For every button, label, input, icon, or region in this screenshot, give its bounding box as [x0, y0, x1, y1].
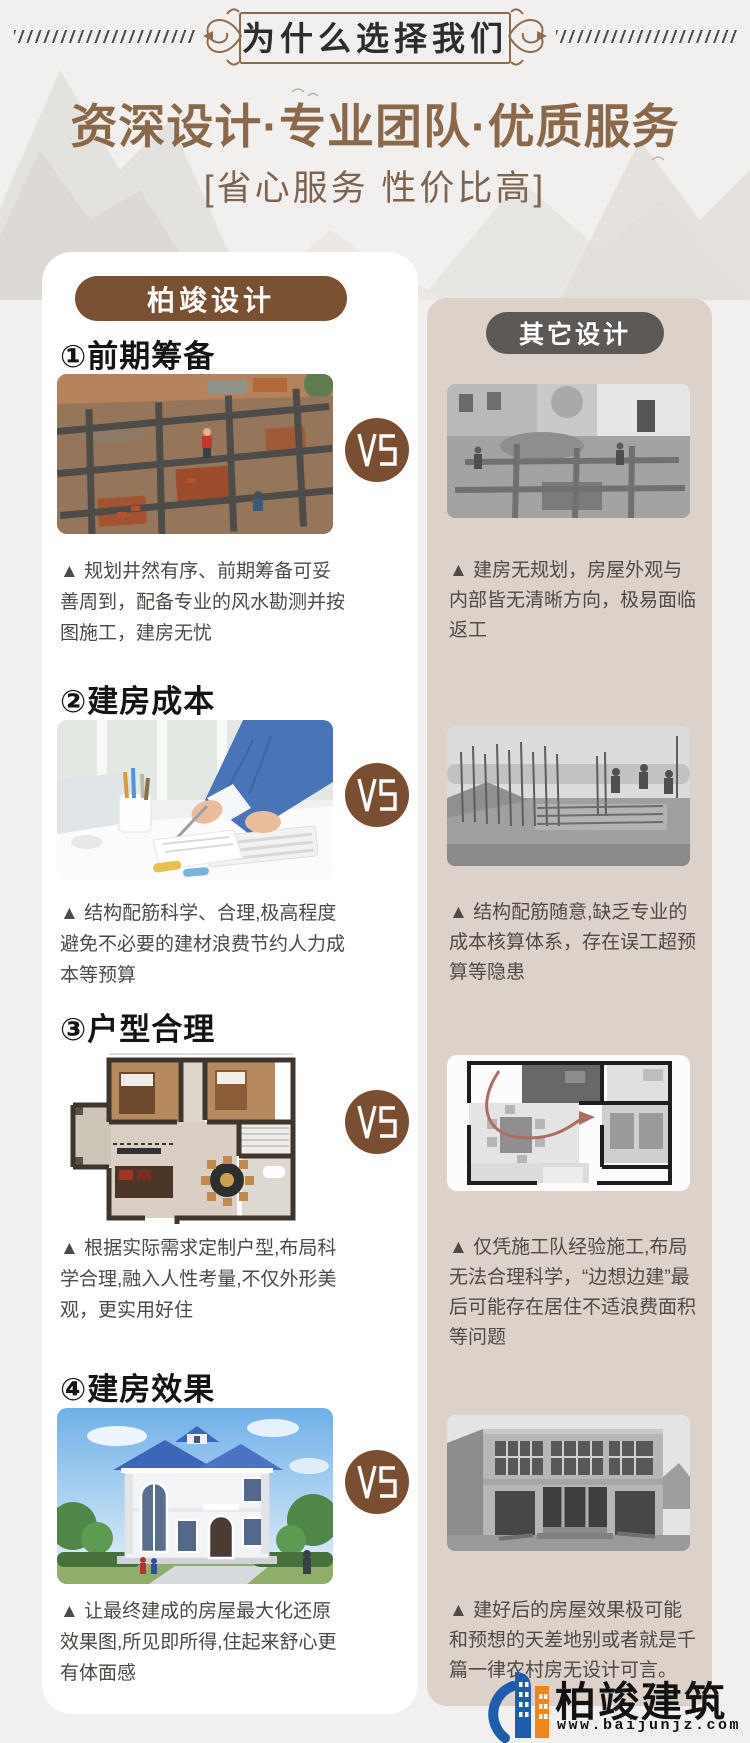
vs-icon: [357, 1464, 397, 1500]
brand-website: www.baijunjz.com: [557, 1717, 741, 1734]
hatch-lines-right: [556, 30, 738, 43]
section2-left-image: [57, 720, 333, 880]
hatch-lines-left: [14, 30, 196, 43]
section1-left-image: [57, 374, 333, 534]
vs-circle-1: [345, 418, 409, 482]
vs-icon: [357, 432, 397, 468]
section3-heading: ③户型合理: [60, 1004, 215, 1049]
section3-left-image: [57, 1048, 333, 1224]
promo-page: 为什么选择我们 资深设计·专业团队·优质服务 [省心服务 性价比高] 柏竣设计 …: [0, 0, 750, 1743]
section3-right-caption: ▲ 仅凭施工队经验施工,布局无法合理科学，“边想边建”最后可能存在居住不适浪费面…: [449, 1233, 699, 1353]
section4-right-image: [447, 1415, 690, 1551]
vs-circle-4: [345, 1450, 409, 1514]
section1-heading: ①前期筹备: [60, 331, 215, 376]
vs-icon: [357, 1104, 397, 1140]
footer-logo: 柏竣建筑 www.baijunjz.com: [483, 1662, 747, 1742]
page-subtitle: [省心服务 性价比高]: [0, 160, 750, 211]
section3-left-caption: ▲ 根据实际需求定制户型,布局科学合理,融入人性考量,不仅外形美观，更实用好住: [60, 1233, 350, 1326]
our-design-badge: 柏竣设计: [75, 276, 347, 321]
section2-heading: ②建房成本: [60, 676, 215, 721]
section1-right-image: [447, 384, 690, 518]
section4-left-caption: ▲ 让最终建成的房屋最大化还原效果图,所见即所得,住起来舒心更有体面感: [60, 1596, 350, 1689]
banner: 为什么选择我们: [205, 6, 545, 68]
section1-left-caption: ▲ 规划井然有序、前期筹备可妥善周到，配备专业的风水勘测并按图施工，建房无忧: [60, 556, 350, 649]
banner-title: 为什么选择我们: [205, 6, 545, 66]
vs-icon: [357, 777, 397, 813]
vs-circle-2: [345, 763, 409, 827]
page-title: 资深设计·专业团队·优质服务: [0, 88, 750, 157]
section2-left-caption: ▲ 结构配筋科学、合理,极高程度避免不必要的建材浪费节约人力成本等预算: [60, 898, 350, 991]
section4-heading: ④建房效果: [60, 1364, 215, 1409]
section4-left-image: [57, 1408, 333, 1584]
section2-right-image: [447, 726, 690, 866]
section2-right-caption: ▲ 结构配筋随意,缺乏专业的成本核算体系，存在误工超预算等隐患: [449, 898, 699, 988]
other-design-badge: 其它设计: [486, 312, 664, 354]
section1-right-caption: ▲ 建房无规划，房屋外观与内部皆无清晰方向，极易面临返工: [449, 556, 699, 646]
section3-right-image: [447, 1055, 690, 1191]
vs-circle-3: [345, 1090, 409, 1154]
brand-building-icon: [483, 1664, 551, 1743]
